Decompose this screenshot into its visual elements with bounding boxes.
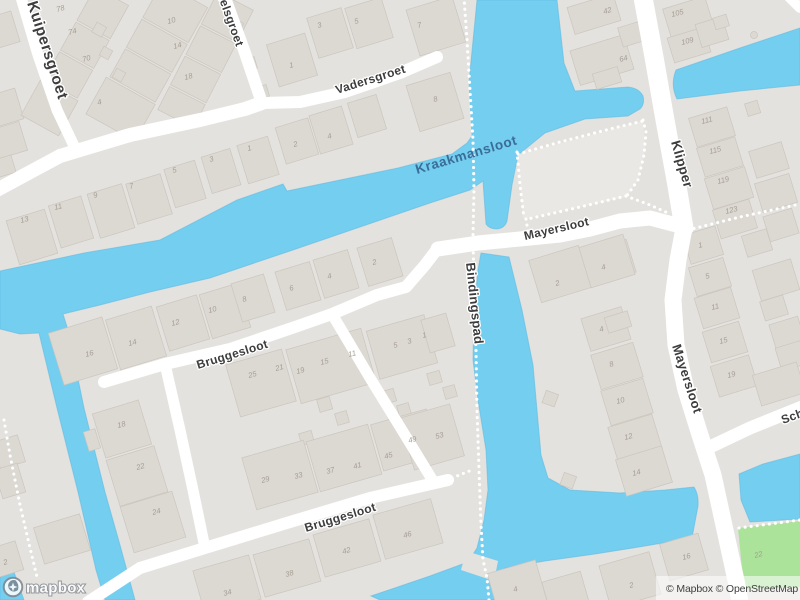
svg-text:mapbox: mapbox — [26, 580, 86, 597]
svg-text:© Mapbox © OpenStreetMap: © Mapbox © OpenStreetMap — [666, 583, 798, 595]
